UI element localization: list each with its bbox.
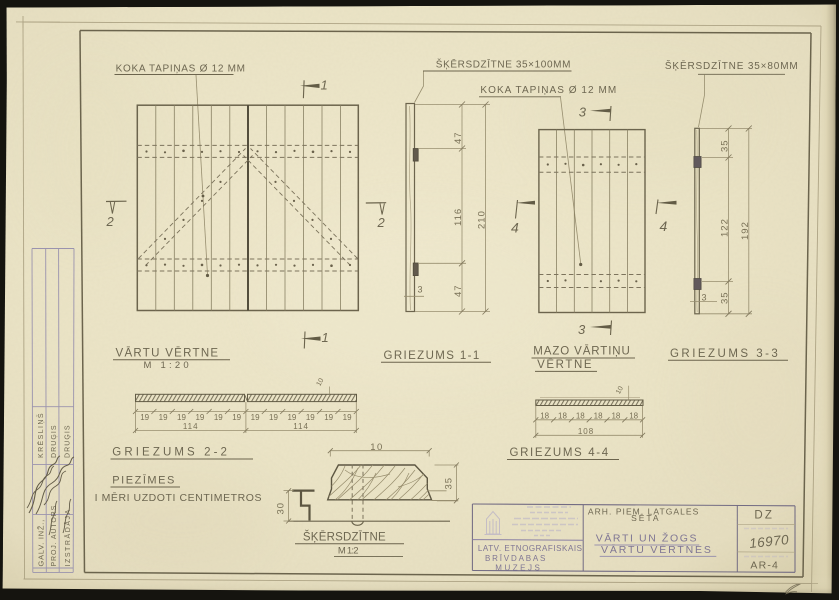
svg-text:19: 19 xyxy=(140,413,149,422)
svg-text:KRĒSLIŅŠ: KRĒSLIŅŠ xyxy=(36,413,45,458)
svg-text:18: 18 xyxy=(540,411,549,420)
svg-text:19: 19 xyxy=(177,413,186,422)
svg-text:GRIEZUMS 4-4: GRIEZUMS 4-4 xyxy=(510,447,611,459)
svg-text:GRIEZUMS 2-2: GRIEZUMS 2-2 xyxy=(112,446,229,458)
svg-text:GRIEZUMS 1-1: GRIEZUMS 1-1 xyxy=(384,350,482,362)
svg-text:2: 2 xyxy=(106,214,115,229)
svg-text:35: 35 xyxy=(720,291,731,304)
svg-text:18: 18 xyxy=(629,411,638,420)
svg-text:3: 3 xyxy=(418,285,423,295)
svg-text:ŠĶĒRSDZĪTNE 35×100MM: ŠĶĒRSDZĪTNE 35×100MM xyxy=(436,58,572,71)
svg-text:1: 1 xyxy=(321,78,328,93)
svg-text:192: 192 xyxy=(740,221,751,240)
svg-text:ŠĶĒRSDZĪTNE: ŠĶĒRSDZĪTNE xyxy=(303,530,388,543)
svg-text:19: 19 xyxy=(232,413,241,422)
svg-text:M 1:20: M 1:20 xyxy=(144,360,191,371)
svg-text:19: 19 xyxy=(214,413,223,422)
svg-text:19: 19 xyxy=(159,413,168,422)
svg-text:KOKA TAPIŅAS Ø 12 MM: KOKA TAPIŅAS Ø 12 MM xyxy=(116,64,247,75)
svg-text:DZ: DZ xyxy=(754,509,775,521)
svg-text:IZSTRĀDĀJA: IZSTRĀDĀJA xyxy=(64,509,72,566)
svg-text:4: 4 xyxy=(511,220,519,236)
svg-text:19: 19 xyxy=(287,413,296,422)
svg-text:18: 18 xyxy=(611,411,620,420)
svg-text:AR-4: AR-4 xyxy=(750,559,779,571)
svg-text:4: 4 xyxy=(660,218,668,234)
svg-text:35: 35 xyxy=(720,139,731,152)
svg-text:3: 3 xyxy=(579,105,587,120)
svg-text:47: 47 xyxy=(453,131,464,144)
svg-text:SĒTA: SĒTA xyxy=(631,513,660,523)
svg-text:19: 19 xyxy=(343,413,352,422)
svg-text:GALV. INŽ.,: GALV. INŽ., xyxy=(36,520,45,567)
svg-text:108: 108 xyxy=(578,427,594,436)
svg-text:DRUĢIS: DRUĢIS xyxy=(51,425,58,458)
svg-text:47: 47 xyxy=(453,284,464,297)
svg-text:I MĒRI UZDOTI CENTIMETROS: I MĒRI UZDOTI CENTIMETROS xyxy=(95,492,263,504)
svg-text:3: 3 xyxy=(702,293,707,303)
svg-text:116: 116 xyxy=(453,208,464,226)
svg-text:MUZEJS: MUZEJS xyxy=(495,564,543,573)
svg-text:PIEZĪMES: PIEZĪMES xyxy=(112,475,176,487)
svg-text:2: 2 xyxy=(377,215,386,230)
svg-text:30: 30 xyxy=(276,502,287,515)
svg-text:ŠĶĒRSDZĪTNE 35×80MM: ŠĶĒRSDZĪTNE 35×80MM xyxy=(665,59,799,72)
svg-text:VĀRTI UN ŽOGS: VĀRTI UN ŽOGS xyxy=(596,531,698,544)
svg-text:LATV. ETNOGRAFISKAIS: LATV. ETNOGRAFISKAIS xyxy=(478,544,583,553)
svg-text:BRĪVDABAS: BRĪVDABAS xyxy=(485,554,548,563)
svg-text:18: 18 xyxy=(558,411,567,420)
svg-text:19: 19 xyxy=(269,413,278,422)
svg-text:18: 18 xyxy=(576,411,585,420)
svg-text:VĒRTNE: VĒRTNE xyxy=(537,359,594,371)
svg-text:M 1:2: M 1:2 xyxy=(338,546,360,557)
svg-text:3: 3 xyxy=(578,322,586,337)
svg-text:18: 18 xyxy=(594,411,603,420)
svg-text:19: 19 xyxy=(251,413,260,422)
svg-text:VĀRTU VĒRTNE: VĀRTU VĒRTNE xyxy=(116,347,221,359)
svg-text:19: 19 xyxy=(195,413,204,422)
svg-text:210: 210 xyxy=(477,210,488,229)
svg-text:10: 10 xyxy=(370,442,384,453)
svg-text:122: 122 xyxy=(720,218,731,237)
svg-text:KOKA TAPIŅAS Ø 12 MM: KOKA TAPIŅAS Ø 12 MM xyxy=(480,85,617,96)
svg-text:VĀRTU VĒRTNES: VĀRTU VĒRTNES xyxy=(601,544,712,556)
svg-text:DRUĢIS: DRUĢIS xyxy=(65,425,72,458)
svg-text:GRIEZUMS 3-3: GRIEZUMS 3-3 xyxy=(670,348,780,360)
svg-text:35: 35 xyxy=(444,477,455,490)
svg-text:19: 19 xyxy=(306,413,315,422)
svg-text:MAZO VĀRTIŅU: MAZO VĀRTIŅU xyxy=(533,345,632,357)
svg-text:19: 19 xyxy=(324,413,333,422)
svg-text:114: 114 xyxy=(183,422,199,431)
svg-text:114: 114 xyxy=(293,422,309,431)
svg-text:1: 1 xyxy=(322,330,329,345)
